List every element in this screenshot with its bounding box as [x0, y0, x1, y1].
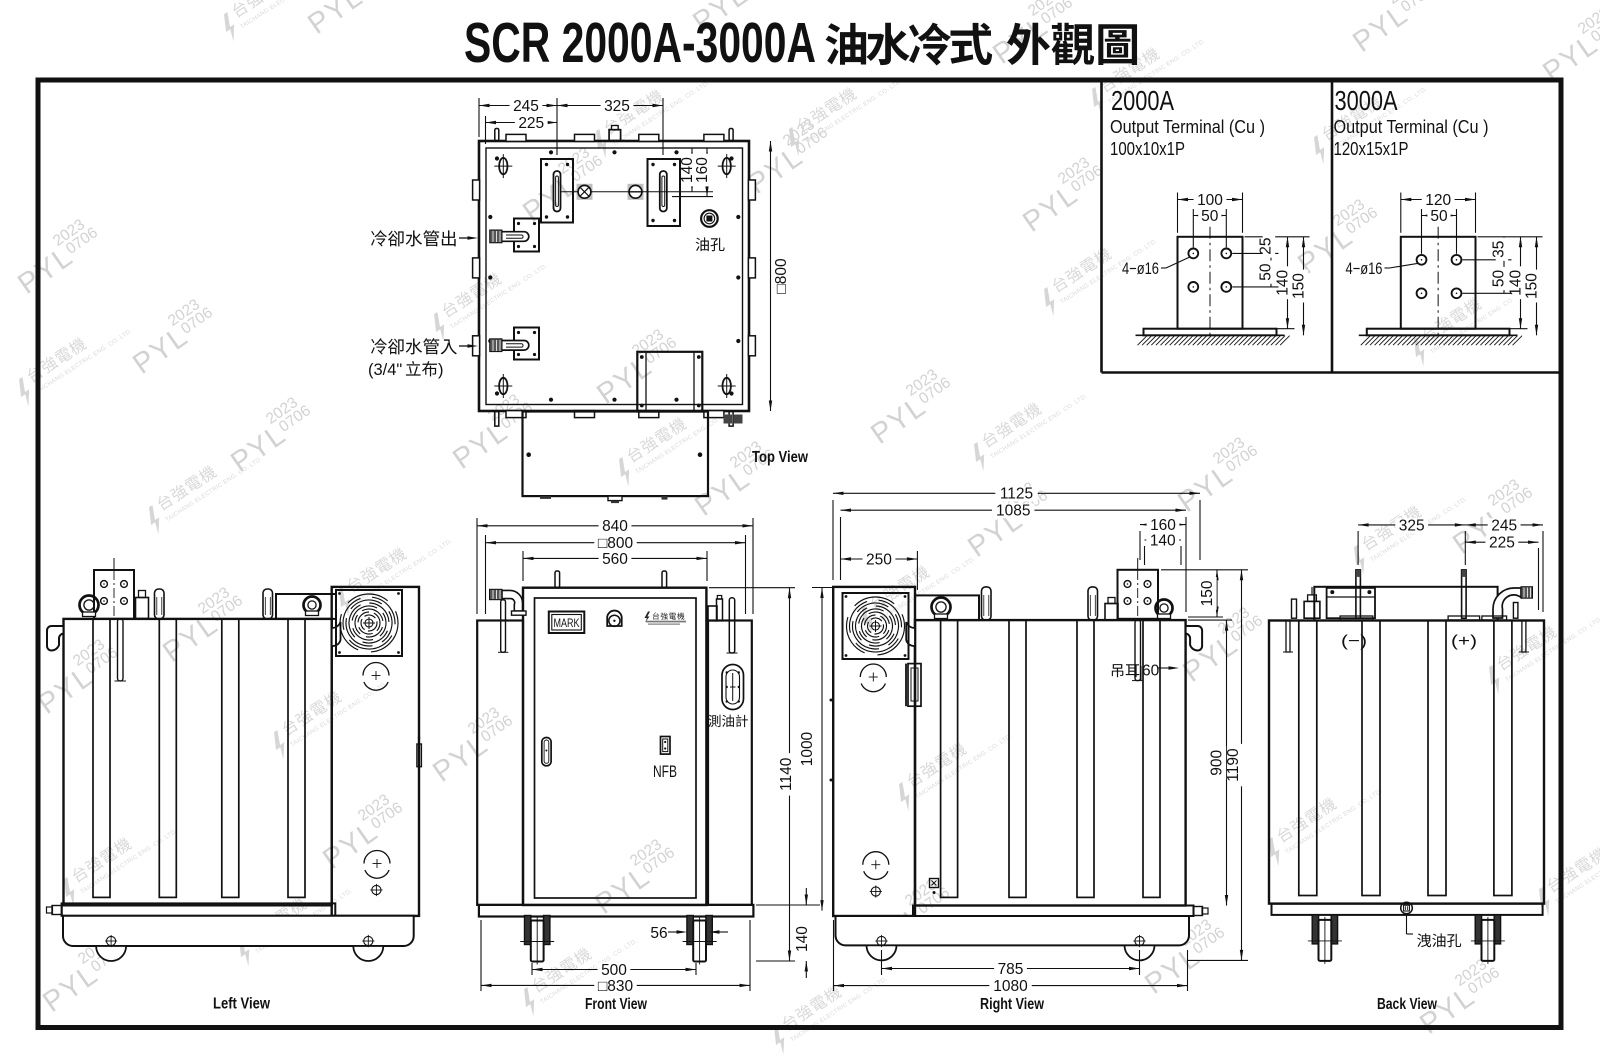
svg-text:225: 225 [1489, 535, 1515, 552]
svg-text:25: 25 [1258, 237, 1275, 254]
svg-text:NFB: NFB [653, 763, 677, 781]
svg-text:140: 140 [794, 926, 811, 952]
svg-text:Front View: Front View [585, 996, 648, 1013]
svg-text:120x15x1P: 120x15x1P [1334, 138, 1409, 159]
svg-text:Back View: Back View [1377, 996, 1438, 1013]
svg-text:1190: 1190 [1225, 748, 1242, 782]
svg-text:(−): (−) [1341, 633, 1367, 650]
svg-text:Output Terminal (Cu ): Output Terminal (Cu ) [1110, 116, 1265, 137]
svg-text:560: 560 [602, 551, 628, 568]
svg-text:325: 325 [1399, 517, 1425, 534]
svg-text:150: 150 [1291, 273, 1308, 299]
svg-text:1125: 1125 [1000, 486, 1033, 503]
svg-text:785: 785 [998, 961, 1024, 978]
svg-text:Top View: Top View [752, 449, 809, 466]
svg-text:245: 245 [513, 98, 539, 115]
svg-text:245: 245 [1491, 517, 1517, 534]
svg-text:100x10x1P: 100x10x1P [1110, 138, 1185, 159]
svg-text:140: 140 [1150, 532, 1176, 549]
svg-text:140: 140 [1275, 269, 1292, 295]
svg-text:325: 325 [604, 98, 630, 115]
svg-text:150: 150 [1524, 273, 1541, 299]
svg-text:50: 50 [1491, 270, 1508, 288]
svg-text:Left View: Left View [213, 996, 271, 1013]
svg-text:4−ø16: 4−ø16 [1122, 260, 1159, 278]
svg-text:840: 840 [602, 518, 628, 535]
svg-text:500: 500 [601, 962, 627, 979]
svg-text:1085: 1085 [996, 503, 1030, 520]
svg-text:250: 250 [866, 551, 892, 568]
svg-text:56: 56 [650, 925, 667, 942]
svg-text:1080: 1080 [993, 978, 1028, 995]
svg-text:): ) [438, 361, 444, 379]
svg-text:225: 225 [518, 115, 544, 132]
svg-text:50: 50 [1201, 208, 1219, 225]
svg-text:3000A: 3000A [1335, 85, 1398, 116]
svg-text:35: 35 [1491, 241, 1508, 258]
svg-text:900: 900 [1209, 749, 1226, 775]
svg-text:2000A: 2000A [1111, 85, 1174, 116]
svg-text:50: 50 [1430, 208, 1448, 225]
svg-text:1000: 1000 [799, 731, 816, 766]
svg-text:□800: □800 [598, 535, 634, 552]
svg-text:60: 60 [1142, 663, 1160, 680]
svg-text:(+): (+) [1451, 633, 1477, 650]
svg-text:4−ø16: 4−ø16 [1346, 260, 1383, 278]
svg-text:100: 100 [1197, 192, 1223, 209]
svg-text:□800: □800 [773, 258, 790, 294]
svg-text:50: 50 [1258, 263, 1275, 281]
svg-text:MARK: MARK [554, 618, 580, 630]
svg-text:□830: □830 [598, 978, 634, 995]
svg-text:Output Terminal (Cu ): Output Terminal (Cu ) [1334, 116, 1489, 137]
svg-text:120: 120 [1425, 192, 1451, 209]
svg-text:150: 150 [1199, 580, 1216, 606]
svg-text:1140: 1140 [778, 757, 795, 791]
svg-text:(3/4": (3/4" [368, 361, 402, 379]
svg-text:140: 140 [1508, 269, 1525, 295]
svg-text:SCR 2000A-3000A: SCR 2000A-3000A [464, 11, 816, 75]
svg-text:Right View: Right View [980, 996, 1045, 1013]
svg-text:160: 160 [694, 157, 711, 183]
